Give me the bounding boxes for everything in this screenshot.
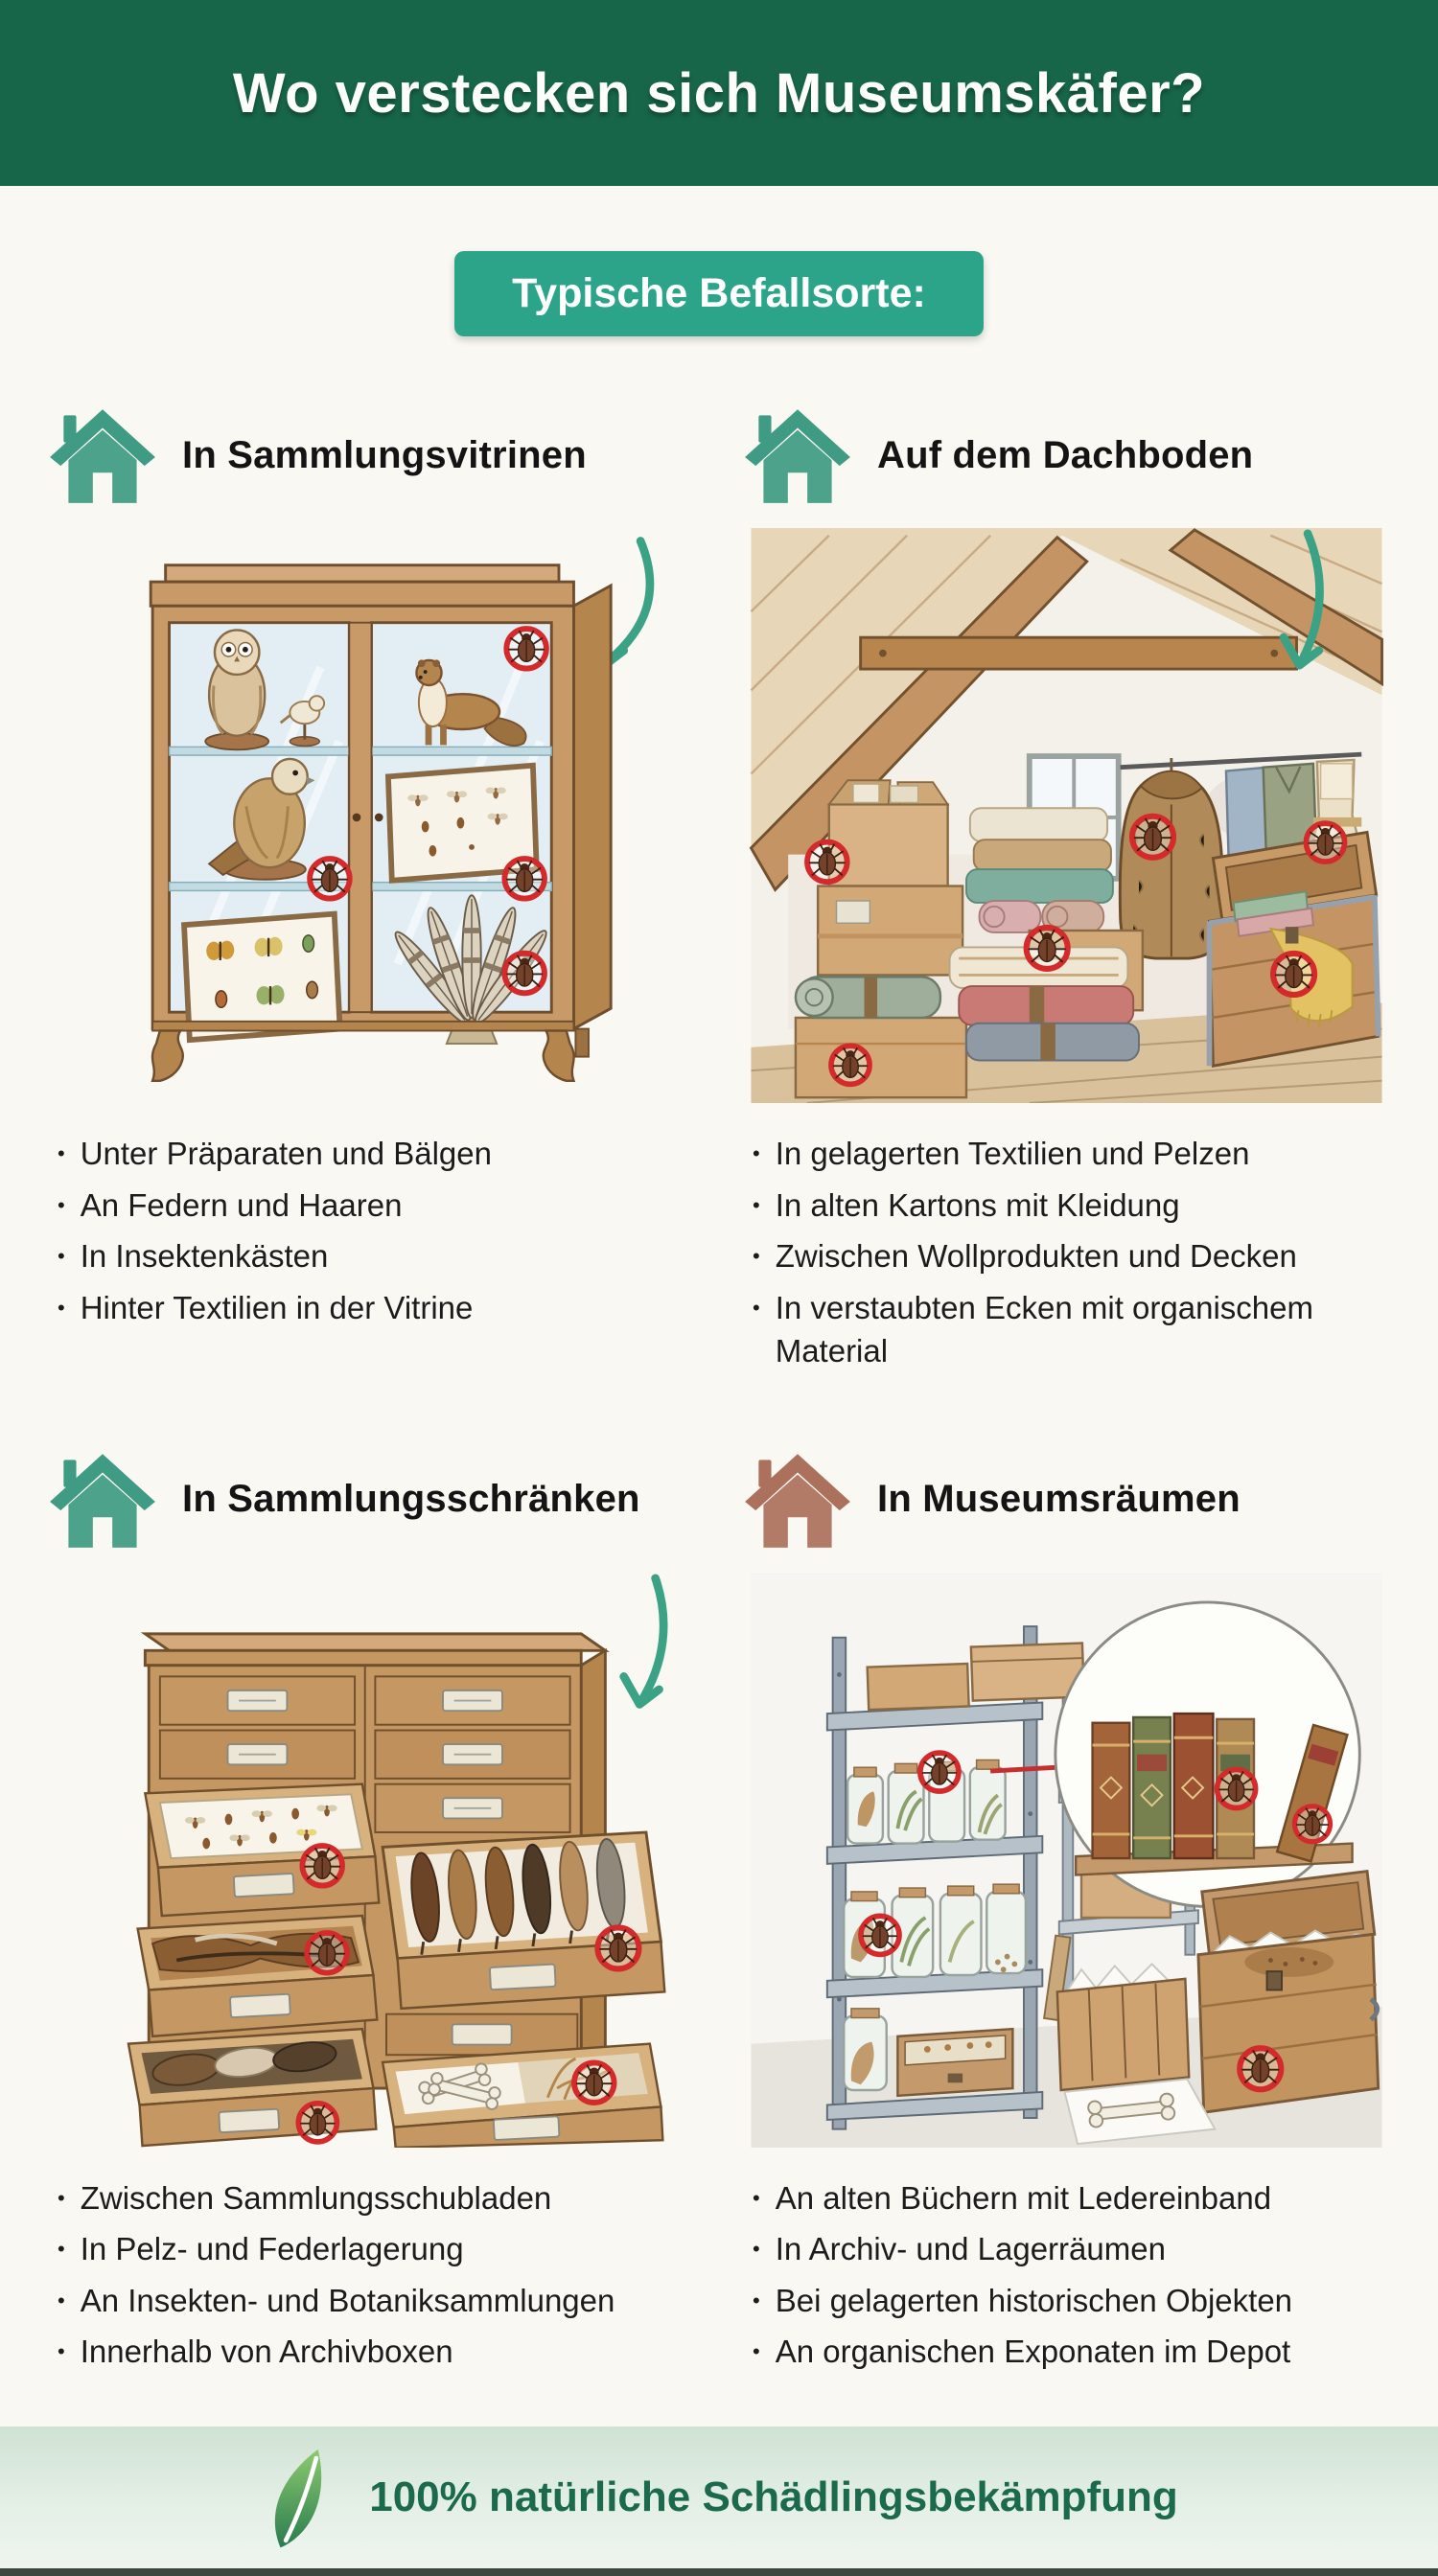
list-item: •An alten Büchern mit Ledereinband	[753, 2176, 1394, 2220]
beetle-marker	[1027, 928, 1068, 969]
pelt-drawer-left	[128, 2029, 376, 2146]
list-item: •Unter Präparaten und Bälgen	[58, 1132, 699, 1176]
list-item: •Bei gelagerten historischen Objekten	[753, 2279, 1394, 2323]
bullet-list: •Unter Präparaten und Bälgen •An Federn …	[44, 1132, 699, 1337]
footer-label: 100% natürliche Schädlingsbekämpfung	[369, 2473, 1178, 2521]
beetle-marker	[506, 629, 546, 669]
section-title: In Sammlungsvitrinen	[182, 434, 587, 477]
list-item: •In Insektenkästen	[58, 1234, 699, 1278]
section-title: In Museumsräumen	[877, 1478, 1241, 1521]
museum-room-illustration	[739, 1573, 1394, 2148]
section-sammlungsschraenke: In Sammlungsschränken	[44, 1381, 699, 2381]
house-icon	[44, 401, 161, 510]
list-item: •In verstaubten Ecken mit organischem Ma…	[753, 1286, 1394, 1373]
beetle-marker	[298, 2103, 336, 2141]
fur-drawer	[138, 1916, 378, 2036]
beetle-marker	[1306, 823, 1344, 862]
list-item: •Innerhalb von Archivboxen	[58, 2330, 699, 2374]
bullet-list: •Zwischen Sammlungsschubladen •In Pelz- …	[44, 2176, 699, 2381]
attic-illustration	[739, 528, 1394, 1103]
folded-blankets	[966, 808, 1113, 932]
beetle-marker	[302, 1846, 342, 1886]
sections-grid: In Sammlungsvitrinen	[0, 336, 1438, 2381]
list-item: •Zwischen Sammlungsschubladen	[58, 2176, 699, 2220]
section-header: In Sammlungsvitrinen	[44, 396, 699, 515]
house-icon	[739, 401, 856, 510]
beetle-marker	[504, 954, 545, 994]
subtitle-badge: Typische Befallsorte:	[454, 251, 984, 336]
drawer-cabinet-illustration	[44, 1573, 699, 2148]
footer: 100% natürliche Schädlingsbekämpfung	[0, 2426, 1438, 2576]
beetle-marker	[1273, 954, 1314, 995]
vitrine-illustration	[44, 528, 699, 1103]
section-header: In Sammlungsschränken	[44, 1440, 699, 1559]
beetle-marker	[807, 842, 847, 883]
list-item: •An Insekten- und Botaniksammlungen	[58, 2279, 699, 2323]
header-banner: Wo verstecken sich Museumskäfer?	[0, 0, 1438, 186]
beetle-marker	[574, 2062, 615, 2103]
beetle-marker	[1132, 816, 1173, 858]
list-item: •In Pelz- und Federlagerung	[58, 2227, 699, 2271]
section-header: Auf dem Dachboden	[739, 396, 1394, 515]
house-icon	[739, 1445, 856, 1554]
bullet-list: •In gelagerten Textilien und Pelzen •In …	[739, 1132, 1394, 1381]
bullet-list: •An alten Büchern mit Ledereinband •In A…	[739, 2176, 1394, 2381]
section-title: In Sammlungsschränken	[182, 1478, 640, 1521]
list-item: •An Federn und Haaren	[58, 1184, 699, 1228]
beetle-marker	[310, 859, 350, 899]
beetle-marker	[307, 1933, 347, 1973]
beetle-marker	[861, 1916, 899, 1954]
beetle-marker	[1218, 1769, 1256, 1807]
insect-specimen-drawer	[145, 1783, 379, 1915]
rolled-rug	[796, 977, 940, 1018]
leaf-icon	[260, 2446, 342, 2553]
page-title: Wo verstecken sich Museumskäfer?	[233, 61, 1205, 126]
list-item: •Hinter Textilien in der Vitrine	[58, 1286, 699, 1330]
list-item: •In gelagerten Textilien und Pelzen	[753, 1132, 1394, 1176]
infographic-page: Wo verstecken sich Museumskäfer? Typisch…	[0, 0, 1438, 2576]
pelt-drawer-right	[383, 1832, 664, 2009]
footer-edge	[0, 2568, 1438, 2576]
open-chest	[1198, 1871, 1379, 2112]
section-museumsraeume: In Museumsräumen	[739, 1381, 1394, 2381]
curved-arrow-icon	[640, 1577, 663, 1702]
list-item: •In Archiv- und Lagerräumen	[753, 2227, 1394, 2271]
list-item: •Zwischen Wollprodukten und Decken	[753, 1234, 1394, 1278]
list-item: •An organischen Exponaten im Depot	[753, 2330, 1394, 2374]
beetle-marker	[504, 859, 545, 899]
section-dachboden: Auf dem Dachboden	[739, 336, 1394, 1381]
beetle-marker	[597, 1927, 638, 1968]
beetle-marker	[920, 1753, 959, 1791]
list-item: •In alten Kartons mit Kleidung	[753, 1184, 1394, 1228]
section-title: Auf dem Dachboden	[877, 434, 1253, 477]
house-icon	[44, 1445, 161, 1554]
wooden-trunk	[1210, 832, 1379, 1066]
beetle-marker	[1294, 1805, 1330, 1841]
beetle-marker	[1240, 2048, 1281, 2089]
footer-band: 100% natürliche Schädlingsbekämpfung	[0, 2426, 1438, 2568]
beetle-marker	[831, 1046, 870, 1084]
section-sammlungsvitrinen: In Sammlungsvitrinen	[44, 336, 699, 1337]
section-header: In Museumsräumen	[739, 1440, 1394, 1559]
bones-and-plants-drawer	[383, 2043, 662, 2147]
